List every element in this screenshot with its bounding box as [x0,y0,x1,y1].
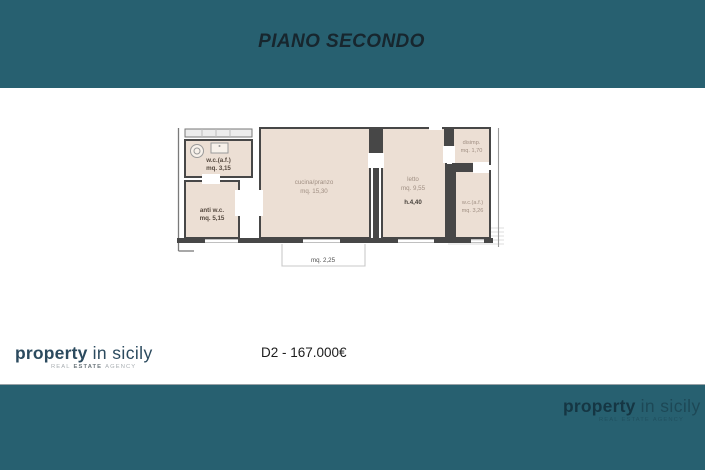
agency-logo: propertyin sicily REALESTATEAGENCY [15,343,153,370]
label-wc2-name: w.c.(a.f.) [461,200,483,206]
label-cucina-area: mq. 15,30 [300,188,328,195]
watermark-tagline-estate: ESTATE [622,417,650,423]
agency-logo-light: in sicily [93,343,153,363]
label-letto-area: mq. 9,55 [401,185,426,192]
floor-plan: w.c.(a.f.) mq. 3,15 anti w.c. mq. 5,15 c… [172,120,504,272]
tagline-real: REAL [51,364,71,370]
label-disimp-name: disimp. [463,140,481,146]
label-balcony-area: mq. 2,25 [311,257,336,264]
watermark-tagline-real: REAL [599,417,619,423]
agency-logo-bold: property [15,343,88,363]
watermark-logo: propertyin sicily REALESTATEAGENCY [563,396,701,423]
shaft-strip [185,129,252,137]
page-title: PIANO SECONDO [0,0,694,53]
tagline-agency: AGENCY [105,364,136,370]
header-band: PIANO SECONDO [0,0,705,88]
toilet-icon [211,143,228,153]
agency-logo-wordmark: propertyin sicily [15,343,153,363]
label-anti-area: mq. 5,15 [200,215,225,222]
label-wc2-area: mq. 3,26 [462,208,484,214]
page: PIANO SECONDO [0,0,705,470]
toilet-dot-icon [219,145,221,147]
label-cucina-name: cucina/pranzo [295,179,334,186]
detail-unit-price: D2 - 167.000€ [261,343,480,363]
watermark-bold: property [563,396,636,416]
washbasin-icon [191,145,204,158]
tagline-estate: ESTATE [74,364,103,370]
label-wc1-name: w.c.(a.f.) [205,157,231,164]
label-wc1-area: mq. 3,15 [206,165,231,172]
label-letto-name: letto [407,176,419,183]
label-anti-name: anti w.c. [200,207,224,214]
watermark-light: in sicily [641,396,701,416]
label-letto-height: h.4,40 [404,199,422,206]
watermark-tagline-agency: AGENCY [653,417,684,423]
room-letto [382,128,446,238]
room-disimp [453,128,490,164]
watermark-tagline: REALESTATEAGENCY [599,417,701,423]
label-disimp-area: mq. 1,70 [461,148,483,154]
watermark-wordmark: propertyin sicily [563,396,701,416]
agency-logo-tagline: REALESTATEAGENCY [51,364,153,370]
